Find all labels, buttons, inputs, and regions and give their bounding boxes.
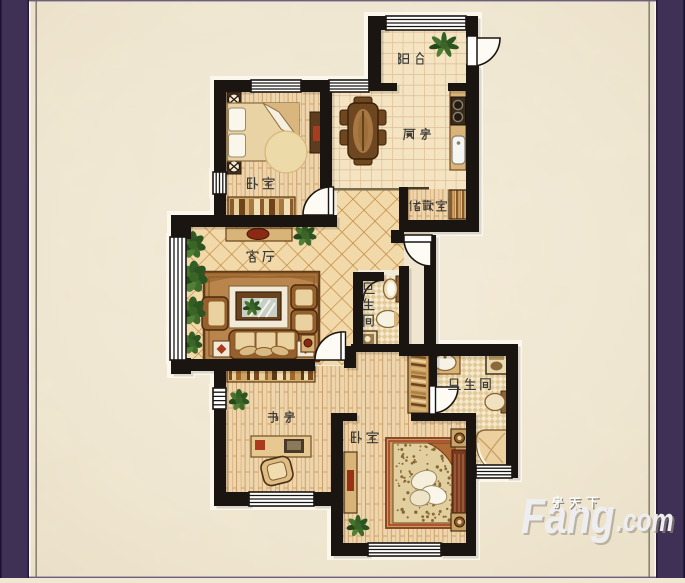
svg-text:.com: .com bbox=[616, 503, 673, 539]
svg-text:Fang: Fang bbox=[521, 490, 615, 544]
